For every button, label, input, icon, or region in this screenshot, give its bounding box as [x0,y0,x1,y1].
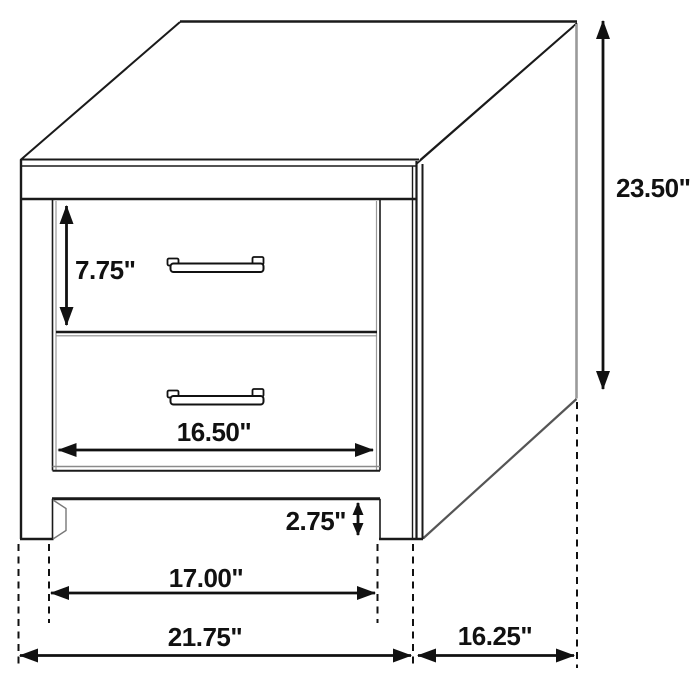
dim-label-depth: 16.25" [458,621,532,651]
top-left-edge [21,22,181,160]
dim-label-overall-width: 21.75" [168,622,242,652]
dim-overall-width: 21.75" [20,622,411,656]
dim-label-overall-height: 23.50" [616,173,690,203]
dim-inner-leg-span: 17.00" [51,563,375,593]
front-left-leg [20,499,66,539]
side-panel [423,24,577,539]
dim-label-drawer-width: 16.50" [177,417,251,447]
dim-top-drawer-height: 7.75" [67,206,136,325]
dim-label-leg-height: 2.75" [286,506,346,536]
dim-label-top-drawer-height: 7.75" [75,255,135,285]
dim-depth: 16.25" [418,621,574,656]
dim-drawer-width: 16.50" [59,417,374,450]
left-leg-side-face [53,500,66,539]
front-frame [21,160,423,540]
dim-leg-height: 2.75" [286,503,358,536]
side-bottom-edge [423,399,577,539]
top-panel [21,22,578,167]
dim-overall-height: 23.50" [603,21,690,389]
top-right-edge-inner [417,27,574,164]
drawer2-handle [168,389,264,405]
drawer1-handle [168,257,264,272]
dim-label-inner-leg-span: 17.00" [169,563,243,593]
nightstand-dimension-diagram: 7.75" 23.50" 16.50" 2.75" 17.00" 21.75" … [0,0,700,700]
handle-bar [171,264,264,273]
handle-bar [171,396,264,405]
diagram-svg: 7.75" 23.50" 16.50" 2.75" 17.00" 21.75" … [0,0,700,700]
